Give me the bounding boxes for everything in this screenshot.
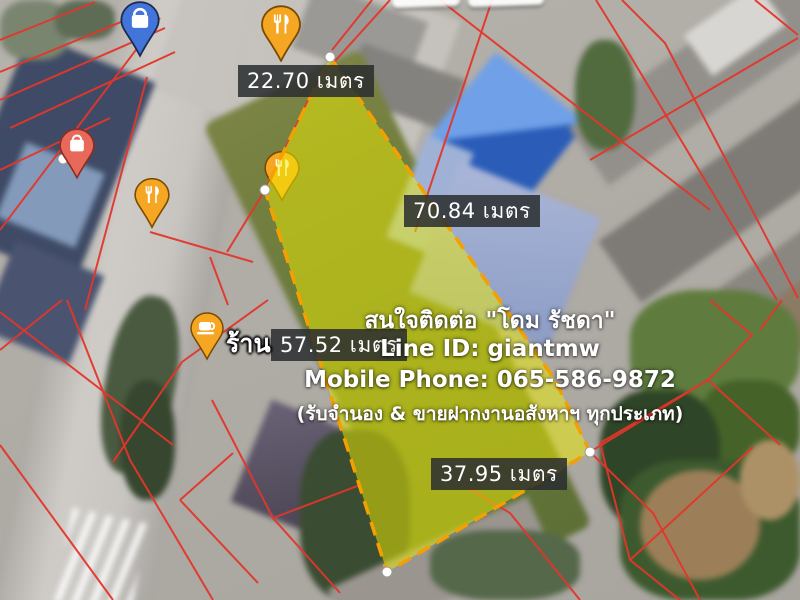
restaurant-pin[interactable] bbox=[259, 5, 303, 66]
restaurant-pin[interactable] bbox=[133, 176, 171, 234]
measurement-label-bottom: 37.95 เมตร bbox=[431, 458, 567, 490]
shop-text-label: ร้าน bbox=[226, 324, 271, 364]
land-parcel-polygon[interactable] bbox=[0, 0, 800, 600]
shop-pin[interactable] bbox=[119, 0, 161, 62]
contact-line-3: Mobile Phone: 065-586-9872 bbox=[280, 367, 700, 393]
contact-line-4: (รับจำนอง & ขายฝากงานอสังหาฯ ทุกประเภท) bbox=[280, 399, 700, 429]
measurement-label-top: 22.70 เมตร bbox=[238, 65, 374, 97]
cafe-pin[interactable] bbox=[189, 309, 225, 367]
satellite-map: 22.70 เมตร 70.84 เมตร 57.52 เมตร 37.95 เ… bbox=[0, 0, 800, 600]
measurement-label-right: 70.84 เมตร bbox=[404, 195, 540, 227]
contact-line-1: สนใจติดต่อ "โดม รัชดา" bbox=[280, 303, 700, 339]
contact-line-2: Line ID: giantmw bbox=[280, 336, 700, 362]
store-pin[interactable] bbox=[58, 126, 96, 185]
